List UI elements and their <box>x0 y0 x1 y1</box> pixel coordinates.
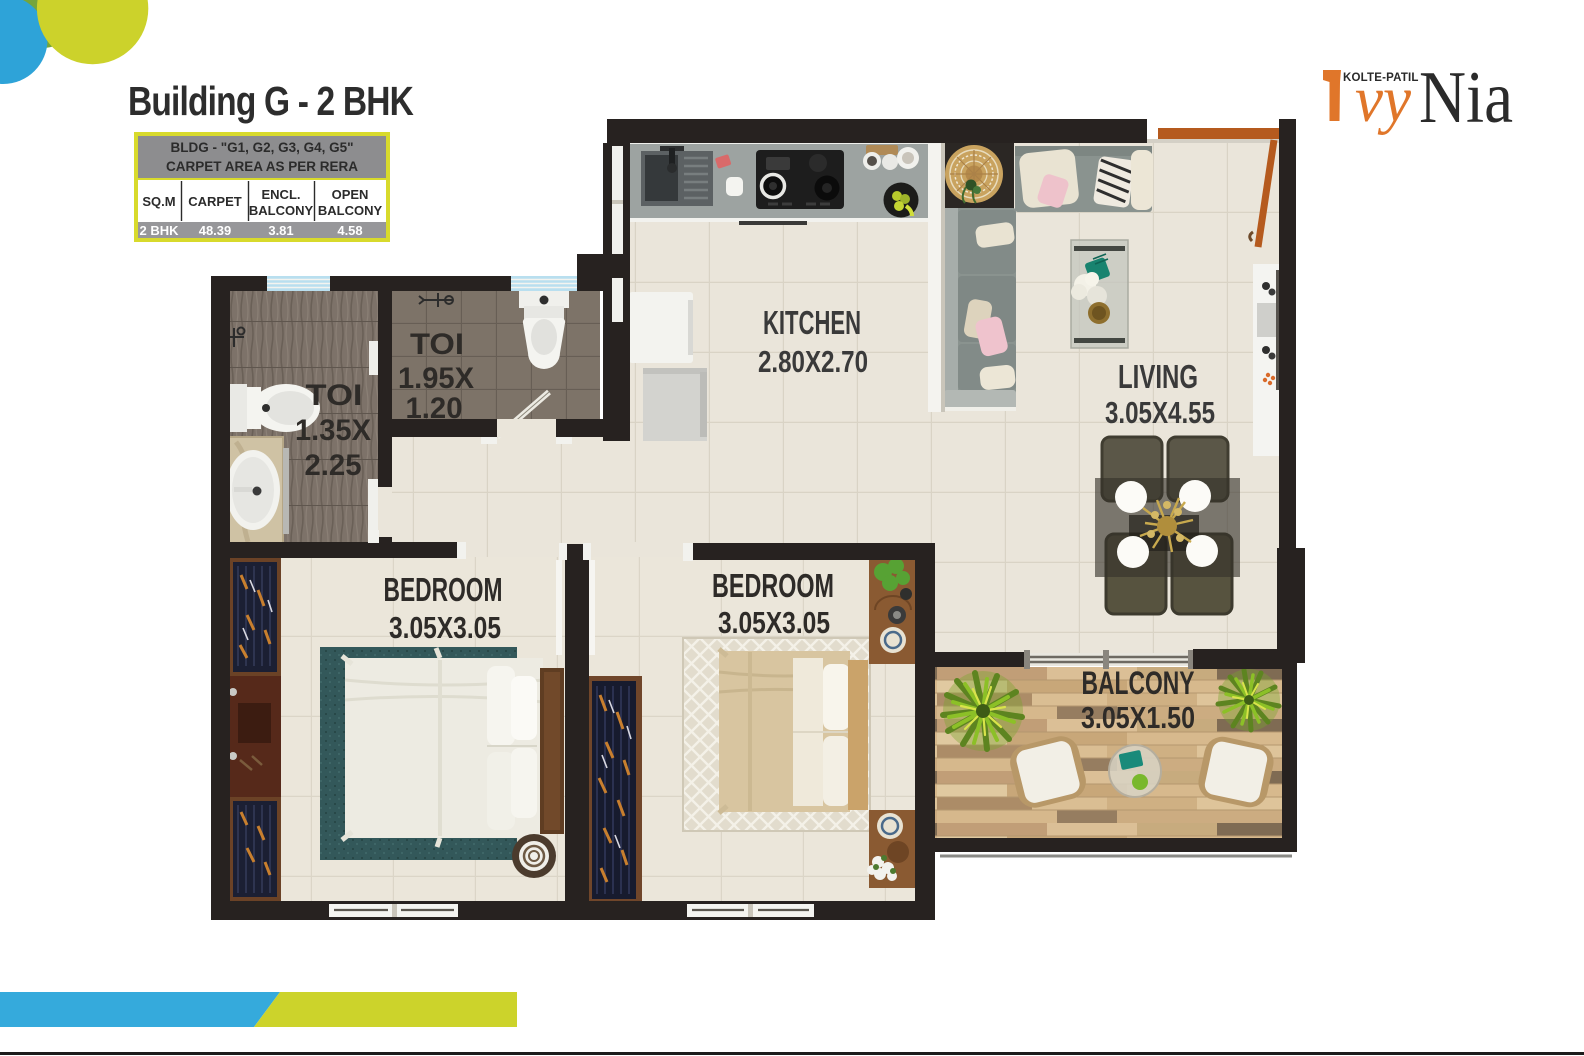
svg-text:3.81: 3.81 <box>268 223 293 238</box>
svg-text:4.58: 4.58 <box>337 223 362 238</box>
svg-text:1.35X: 1.35X <box>295 414 371 447</box>
svg-text:Building G - 2 BHK: Building G - 2 BHK <box>128 78 414 124</box>
svg-text:OPEN: OPEN <box>332 187 369 202</box>
svg-text:2.80X2.70: 2.80X2.70 <box>758 344 868 379</box>
svg-text:TOI: TOI <box>306 379 363 412</box>
svg-text:KITCHEN: KITCHEN <box>763 304 861 341</box>
svg-text:vy: vy <box>1355 63 1412 136</box>
svg-text:2.25: 2.25 <box>305 449 362 482</box>
svg-text:TOI: TOI <box>410 328 464 361</box>
svg-text:CARPET AREA AS PER RERA: CARPET AREA AS PER RERA <box>166 159 358 174</box>
svg-text:3.05X3.05: 3.05X3.05 <box>389 610 501 645</box>
svg-text:BLDG - "G1, G2, G3, G4, G5": BLDG - "G1, G2, G3, G4, G5" <box>170 140 353 155</box>
svg-text:CARPET: CARPET <box>188 194 242 209</box>
svg-text:BALCONY: BALCONY <box>249 203 314 218</box>
svg-text:3.05X4.55: 3.05X4.55 <box>1105 395 1215 430</box>
svg-text:Nia: Nia <box>1419 57 1513 139</box>
svg-text:BALCONY: BALCONY <box>318 203 383 218</box>
svg-text:ENCL.: ENCL. <box>262 187 301 202</box>
svg-text:3.05X1.50: 3.05X1.50 <box>1081 700 1195 735</box>
svg-text:BALCONY: BALCONY <box>1082 665 1195 701</box>
svg-text:BEDROOM: BEDROOM <box>712 567 834 604</box>
svg-text:2 BHK: 2 BHK <box>139 223 179 238</box>
svg-text:1.20: 1.20 <box>406 392 463 425</box>
svg-text:BEDROOM: BEDROOM <box>384 571 503 608</box>
svg-text:48.39: 48.39 <box>199 223 232 238</box>
svg-text:1.95X: 1.95X <box>398 362 474 395</box>
svg-text:LIVING: LIVING <box>1118 358 1198 395</box>
svg-text:3.05X3.05: 3.05X3.05 <box>718 605 830 640</box>
svg-text:SQ.M: SQ.M <box>142 194 175 209</box>
